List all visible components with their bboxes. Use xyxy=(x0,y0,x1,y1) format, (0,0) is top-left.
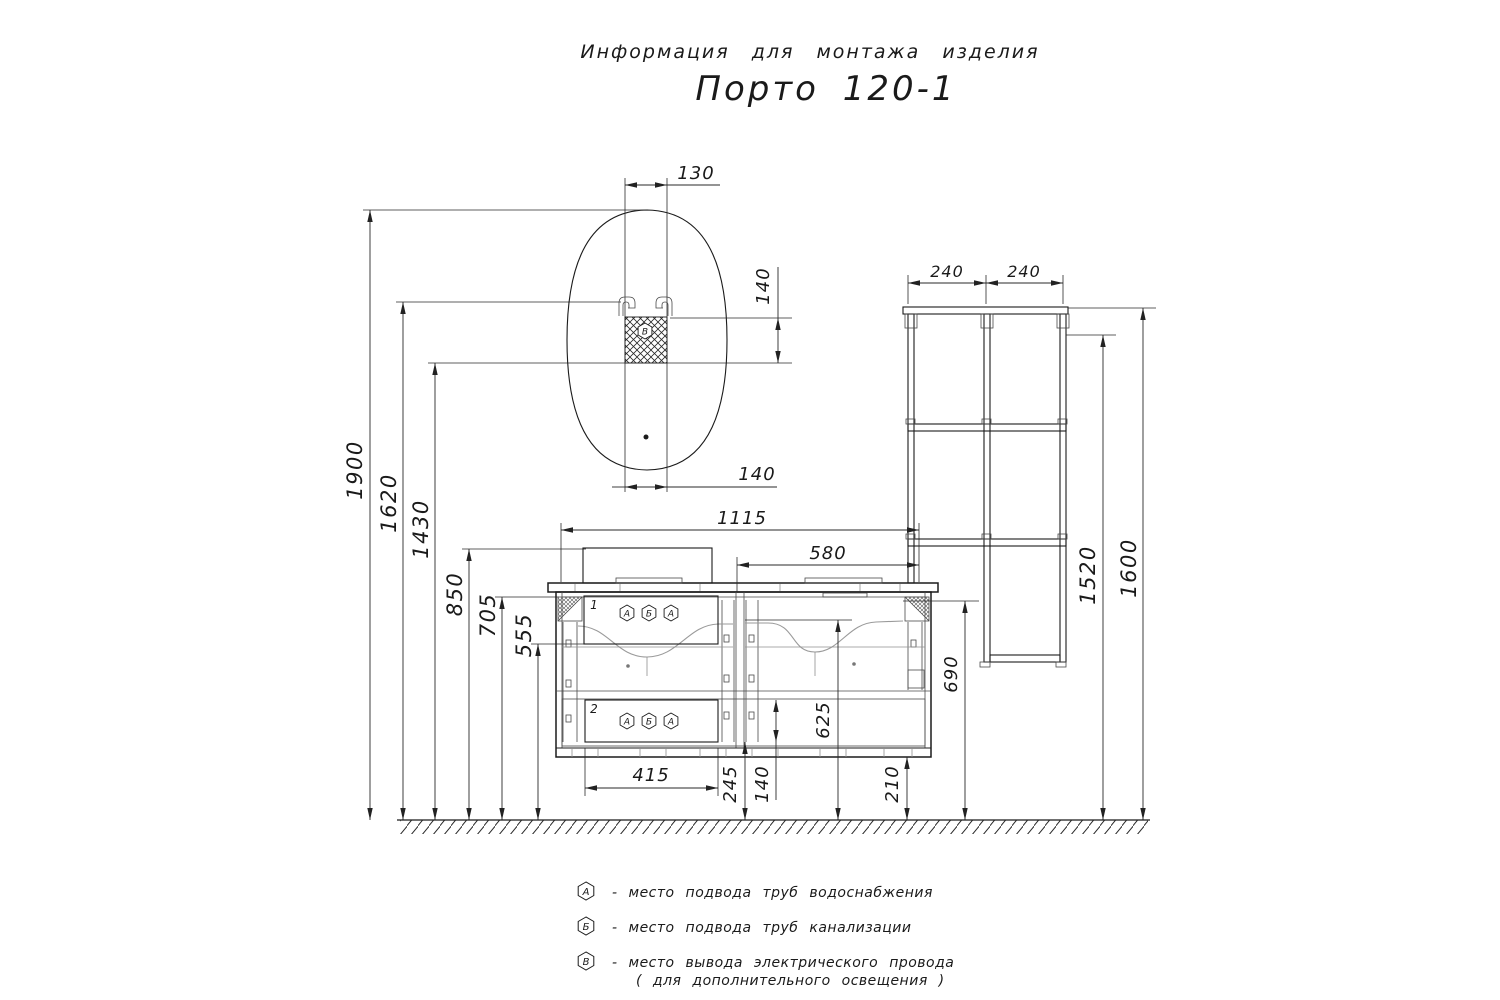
mirror-hanger-left xyxy=(619,297,635,316)
legend: А - место подвода труб водоснабжения Б -… xyxy=(578,882,954,989)
dim-140-bottom: 140 xyxy=(738,464,775,485)
dim-140-outlet: 140 xyxy=(753,267,774,304)
hex-sewer-bottom: Б xyxy=(646,718,652,728)
vanity-cabinet: 1 А Б А 2 А Б А xyxy=(548,548,938,757)
electric-symbol-letter: В xyxy=(642,328,648,338)
dim-1430: 1430 xyxy=(409,499,433,558)
countertop xyxy=(548,583,938,592)
hex-water2-top: А xyxy=(667,610,674,620)
installation-drawing-page: Информация для монтажа изделия Порто 120… xyxy=(0,0,1500,1000)
cabinet-body xyxy=(556,592,931,757)
hex-water-bottom: А xyxy=(623,718,630,728)
dim-1520: 1520 xyxy=(1076,545,1100,604)
dim-1115: 1115 xyxy=(717,508,767,529)
hex-water2-bottom: А xyxy=(667,718,674,728)
floor xyxy=(397,820,1150,834)
legend-text-sewer: - место подвода труб канализации xyxy=(612,920,911,936)
mirror-hanger-right xyxy=(656,297,672,316)
sink-outline-left xyxy=(578,624,733,657)
shelf-bottom-bar xyxy=(990,655,1060,662)
shelf-post-left xyxy=(908,314,914,583)
dim-625: 625 xyxy=(813,701,834,738)
mirror-sensor-dot xyxy=(644,435,649,440)
dim-1620: 1620 xyxy=(377,473,401,532)
legend-hex-sewer: Б xyxy=(583,922,590,933)
shelf-top-slab xyxy=(903,307,1068,314)
shelf-board-2 xyxy=(908,539,1066,546)
hex-water-top: А xyxy=(623,610,630,620)
shelf-foot-left xyxy=(980,662,990,667)
shelf-foot-right xyxy=(1056,662,1066,667)
legend-hex-electric: В xyxy=(583,957,590,968)
dim-705: 705 xyxy=(476,593,500,638)
hex-sewer-top: Б xyxy=(646,610,652,620)
floor-hatching xyxy=(400,821,1148,835)
dim-1600: 1600 xyxy=(1117,538,1141,597)
corner-bracket-left xyxy=(558,597,582,621)
technical-drawing-canvas: Информация для монтажа изделия Порто 120… xyxy=(0,0,1500,1000)
dim-240-left: 240 xyxy=(930,262,964,281)
legend-hex-water: А xyxy=(582,887,590,898)
product-name: Порто 120-1 xyxy=(695,69,956,109)
shelf-board-1 xyxy=(908,424,1066,431)
drawer-slides xyxy=(563,600,924,742)
dim-130: 130 xyxy=(677,163,714,184)
plinth-ticks xyxy=(572,748,912,757)
dim-690: 690 xyxy=(941,655,962,692)
drawing-header: Информация для монтажа изделия Порто 120… xyxy=(580,41,1039,109)
callout-2: 2 xyxy=(590,702,598,716)
dim-245: 245 xyxy=(720,765,741,802)
dim-240-right: 240 xyxy=(1007,262,1041,281)
dim-850: 850 xyxy=(443,572,467,617)
dim-415: 415 xyxy=(632,765,669,786)
mirror: В 130 140 140 xyxy=(567,163,792,492)
shelf-unit: 240 240 1520 1600 xyxy=(903,262,1156,820)
page-title: Информация для монтажа изделия xyxy=(580,41,1039,63)
dim-210: 210 xyxy=(882,765,903,802)
legend-text-electric: - место вывода электрического провода xyxy=(612,955,954,971)
vanity-dimensions: 1115 580 415 245 140 625 690 210 xyxy=(561,508,979,820)
dim-580: 580 xyxy=(809,543,846,564)
shelf-post-right xyxy=(1060,314,1066,662)
dim-555: 555 xyxy=(512,613,536,658)
callout-1: 1 xyxy=(590,598,598,612)
dim-140-niche: 140 xyxy=(752,765,773,802)
legend-text-water: - место подвода труб водоснабжения xyxy=(612,885,933,901)
dim-1900: 1900 xyxy=(343,440,367,499)
open-niche xyxy=(562,699,925,746)
legend-text-electric-note: ( для дополнительного освещения ) xyxy=(636,973,945,989)
shelf-post-middle xyxy=(984,314,990,662)
